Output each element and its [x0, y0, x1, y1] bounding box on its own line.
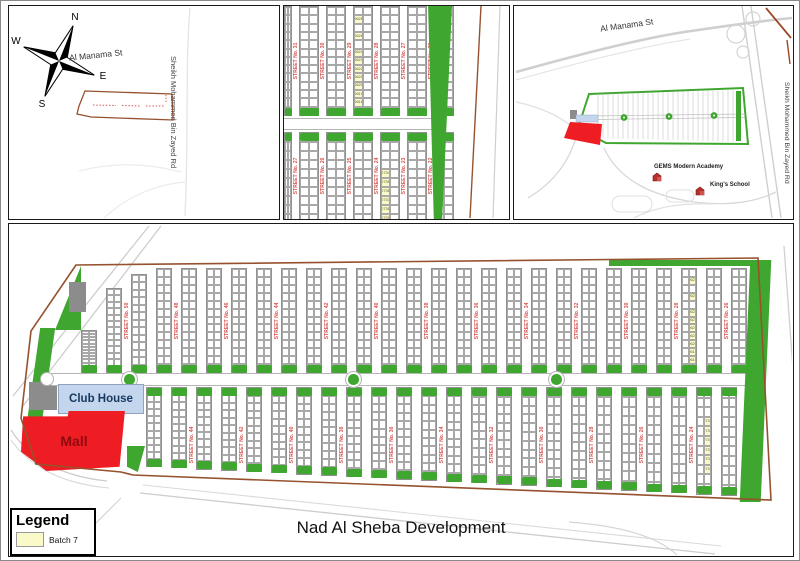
plot: [539, 301, 546, 309]
plot: [457, 285, 464, 293]
plot: [289, 324, 296, 332]
plot: [379, 445, 386, 453]
plot: [397, 446, 404, 454]
plot: [604, 434, 611, 443]
plot: [157, 332, 164, 340]
street: [447, 268, 456, 373]
plot: [407, 324, 414, 332]
plot: [414, 309, 421, 317]
plot: [604, 443, 611, 452]
plot: [639, 277, 646, 285]
plot: [707, 309, 714, 317]
green-verge: [609, 260, 753, 266]
green-strip: [597, 388, 612, 396]
plot-number: 0739: [704, 468, 711, 472]
street: [262, 387, 271, 502]
plot-block: [371, 387, 387, 478]
plot: [322, 451, 329, 459]
plot: [322, 420, 329, 428]
plot: [514, 269, 521, 277]
street-label: STREET No. 50: [124, 302, 129, 339]
plot: [164, 317, 171, 325]
plot: [314, 277, 321, 285]
green-strip: [82, 365, 97, 373]
plot: [407, 309, 414, 317]
plot: [139, 350, 146, 357]
plot: [397, 454, 404, 462]
plot: [597, 406, 604, 415]
plot-number: 0736: [704, 439, 711, 443]
plot: [347, 436, 354, 444]
plot: [632, 332, 639, 340]
street-label: STREET No. 44: [274, 302, 279, 339]
plot: [282, 348, 289, 356]
plot: [504, 414, 511, 423]
plot: [257, 269, 264, 277]
green-strip: [232, 365, 247, 373]
plot: [554, 397, 561, 406]
plot: [164, 285, 171, 293]
plot: [307, 332, 314, 340]
plot: [204, 439, 211, 446]
plot-number: 0734: [704, 420, 711, 424]
plot: [632, 301, 639, 309]
plot: [197, 447, 204, 454]
plot-block: [546, 387, 562, 487]
plot: [507, 285, 514, 293]
plot: [472, 465, 479, 474]
plot: [572, 451, 579, 460]
plot: [489, 285, 496, 293]
plot-zone: STREET No. 44STREET No. 42STREET No. 40S…: [146, 387, 737, 502]
plot: [182, 285, 189, 293]
plot: [307, 348, 314, 356]
plot: [647, 472, 654, 481]
plot: [272, 419, 279, 427]
plot: [532, 317, 539, 325]
plot: [604, 452, 611, 461]
green-strip: [472, 475, 487, 483]
plot: [307, 340, 314, 348]
plot: [489, 277, 496, 285]
plot: [679, 454, 686, 463]
plot: [164, 277, 171, 285]
plot: [672, 416, 679, 425]
plot: [547, 441, 554, 450]
plot: [272, 457, 279, 465]
street-label: STREET No. 34: [524, 302, 529, 339]
plot: [732, 340, 739, 348]
plot: [554, 415, 561, 424]
plot: [664, 317, 671, 325]
plot: [157, 301, 164, 309]
plot: [457, 324, 464, 332]
green-strip: [422, 388, 437, 396]
plot: [454, 464, 461, 472]
plot: [339, 324, 346, 332]
plot-block: [146, 387, 162, 467]
plot-block: [406, 268, 422, 373]
street-label: STREET No. 26: [724, 302, 729, 339]
plot: [232, 356, 239, 364]
street: [197, 268, 206, 373]
plot: [139, 320, 146, 327]
plot: [654, 472, 661, 481]
plot: [447, 422, 454, 430]
plot: [632, 356, 639, 364]
plot: [614, 317, 621, 325]
plot: [372, 445, 379, 453]
plot: [707, 293, 714, 301]
plot-number: 0735: [704, 429, 711, 433]
street: STREET No. 30: [537, 387, 546, 502]
plot: [164, 348, 171, 356]
plot: [164, 324, 171, 332]
plot: [339, 301, 346, 309]
plot: [532, 340, 539, 348]
plot: [457, 356, 464, 364]
plot: [329, 435, 336, 443]
plot: [579, 406, 586, 415]
plot: [464, 356, 471, 364]
plot: [372, 404, 379, 412]
plot: [532, 324, 539, 332]
plot: [589, 332, 596, 340]
plot: [397, 462, 404, 470]
plot: [422, 438, 429, 446]
plot: [282, 356, 289, 364]
street: [412, 387, 421, 502]
plot: [514, 309, 521, 317]
plot: [189, 332, 196, 340]
plot: [429, 438, 436, 446]
plot: [622, 434, 629, 443]
plot: [464, 348, 471, 356]
plot: [604, 425, 611, 434]
green-strip: [282, 365, 297, 373]
plot: [607, 324, 614, 332]
plot: [282, 317, 289, 325]
plot: [382, 277, 389, 285]
plot: [397, 429, 404, 437]
plot: [264, 332, 271, 340]
plot: [564, 332, 571, 340]
plot: [522, 406, 529, 415]
plot: [304, 411, 311, 419]
plot: [389, 332, 396, 340]
green-strip: [697, 486, 712, 494]
plot: [597, 425, 604, 434]
locator-map-graphic: N E S W: [9, 6, 279, 218]
plot-block: [556, 268, 572, 373]
plot: [214, 301, 221, 309]
street: [597, 268, 606, 373]
plot: [539, 269, 546, 277]
plot: [739, 324, 746, 332]
green-strip: [482, 365, 497, 373]
plot-block: [471, 387, 487, 483]
plot: [639, 317, 646, 325]
plot-block: [106, 288, 122, 373]
plot: [464, 269, 471, 277]
plot: [457, 332, 464, 340]
plot: [482, 285, 489, 293]
plot: [414, 324, 421, 332]
plot: [132, 297, 139, 304]
plot: [729, 427, 736, 437]
plot-number: 0618: [689, 358, 696, 362]
plot: [514, 340, 521, 348]
plot: [722, 466, 729, 476]
plot: [464, 277, 471, 285]
plot: [547, 450, 554, 459]
plot: [347, 428, 354, 436]
plot: [622, 471, 629, 480]
plot: [697, 426, 704, 436]
plot-block: [456, 268, 472, 373]
plot: [707, 269, 714, 277]
plot: [432, 324, 439, 332]
plot: [529, 467, 536, 476]
plot: [682, 348, 689, 356]
plot: [729, 398, 736, 408]
plot: [339, 309, 346, 317]
green-strip: [157, 365, 172, 373]
plot: [189, 277, 196, 285]
plot: [382, 340, 389, 348]
green-strip: [707, 365, 722, 373]
plot: [132, 350, 139, 357]
plot: [347, 412, 354, 420]
school-icon: [653, 173, 661, 181]
plot: [482, 317, 489, 325]
plot: [439, 324, 446, 332]
plot: [714, 356, 721, 364]
plot: [189, 301, 196, 309]
plot: [414, 356, 421, 364]
plot: [304, 396, 311, 404]
club-house-label: Club House: [69, 393, 133, 405]
plot: [332, 356, 339, 364]
plot: [354, 436, 361, 444]
plot: [357, 301, 364, 309]
plot: [457, 317, 464, 325]
plot: [732, 269, 739, 277]
plot: [489, 293, 496, 301]
plot: [639, 293, 646, 301]
plot: [657, 348, 664, 356]
plot: [489, 348, 496, 356]
plot: [257, 285, 264, 293]
plot: [207, 301, 214, 309]
plot: [629, 471, 636, 480]
plot: [139, 327, 146, 334]
plot: [589, 293, 596, 301]
plot: [564, 269, 571, 277]
plot: [514, 301, 521, 309]
plot: [657, 293, 664, 301]
plot: [539, 340, 546, 348]
plot: [239, 277, 246, 285]
plot: [729, 446, 736, 456]
plot-number: 0621: [689, 334, 696, 338]
legend-title: Legend: [16, 512, 90, 529]
plot: [332, 269, 339, 277]
plot: [214, 324, 221, 332]
green-strip: [257, 365, 272, 373]
plot: [389, 340, 396, 348]
plot: [339, 269, 346, 277]
plot: [172, 446, 179, 453]
plot: [382, 332, 389, 340]
plot: [564, 277, 571, 285]
plot: [204, 410, 211, 417]
plot: [657, 301, 664, 309]
plot: [322, 459, 329, 467]
plot: [307, 277, 314, 285]
plot: [489, 356, 496, 364]
street: [297, 268, 306, 373]
plot: [182, 340, 189, 348]
plot: [447, 456, 454, 464]
plot: [504, 397, 511, 406]
green-strip: [222, 462, 237, 470]
plot: [279, 411, 286, 419]
plot: [554, 433, 561, 442]
plot: [707, 277, 714, 285]
plot: [354, 404, 361, 412]
plot: [582, 309, 589, 317]
plot: [289, 293, 296, 301]
plot: [229, 433, 236, 440]
plot: [654, 407, 661, 416]
green-strip: [547, 388, 562, 396]
plot: [464, 317, 471, 325]
plot: [639, 340, 646, 348]
street: STREET No. 42: [322, 268, 331, 373]
plot: [732, 293, 739, 301]
plot: [254, 396, 261, 404]
plot: [357, 269, 364, 277]
green-strip: [622, 482, 637, 490]
green-strip: [322, 467, 337, 475]
plot: [189, 324, 196, 332]
plot: [139, 357, 146, 364]
green-strip: [332, 365, 347, 373]
plot: [132, 320, 139, 327]
plot: [314, 332, 321, 340]
street-label: STREET No. 42: [324, 302, 329, 339]
plot: [264, 317, 271, 325]
plot: [547, 468, 554, 477]
plot: [382, 285, 389, 293]
plot: [322, 404, 329, 412]
plot: [132, 290, 139, 297]
plot: [664, 309, 671, 317]
plot: [622, 462, 629, 471]
street: [512, 387, 521, 502]
plot: [364, 348, 371, 356]
plot: [297, 442, 304, 450]
plot: [522, 414, 529, 423]
plot: [314, 348, 321, 356]
plot: [229, 447, 236, 454]
plot: [182, 293, 189, 301]
plot: [314, 285, 321, 293]
plot: [657, 340, 664, 348]
street: [362, 387, 371, 502]
street-label: STREET No. 32: [574, 302, 579, 339]
plot-number: 0626: [689, 295, 696, 299]
plot: [539, 293, 546, 301]
plot: [354, 460, 361, 468]
green-strip: [432, 365, 447, 373]
green-strip: [447, 388, 462, 396]
plot: [714, 277, 721, 285]
plot: [554, 468, 561, 477]
plot-block: [671, 387, 687, 493]
mall: Mall: [21, 411, 127, 471]
plot: [489, 317, 496, 325]
plot: [282, 293, 289, 301]
plot: [532, 277, 539, 285]
plot: [589, 285, 596, 293]
plot-block: [321, 387, 337, 476]
plot: [182, 324, 189, 332]
plot: [147, 438, 154, 445]
mini-mall: [564, 122, 602, 145]
plot: [664, 269, 671, 277]
plot: [357, 285, 364, 293]
plot: [554, 424, 561, 433]
plot: [257, 301, 264, 309]
plot: [579, 469, 586, 478]
plot: [232, 277, 239, 285]
plot: [714, 348, 721, 356]
plot: [482, 293, 489, 301]
plot: [604, 415, 611, 424]
plot: [207, 324, 214, 332]
plot: [164, 301, 171, 309]
plot: [647, 444, 654, 453]
street: STREET No. 28: [587, 387, 596, 502]
green-strip: [507, 365, 522, 373]
plot: [507, 332, 514, 340]
plot-block: [646, 387, 662, 492]
plot: [139, 305, 146, 312]
plot: [564, 317, 571, 325]
plot-block: [181, 268, 197, 373]
plot: [297, 396, 304, 404]
green-strip: [107, 365, 122, 373]
plot: [172, 431, 179, 438]
green-strip: [447, 474, 462, 482]
plot: [422, 430, 429, 438]
plot: [582, 317, 589, 325]
plot: 0739: [704, 465, 711, 475]
plot: [457, 269, 464, 277]
plot: [479, 448, 486, 457]
plot: [164, 309, 171, 317]
plot: 0736: [704, 436, 711, 446]
plot-number: 0624: [689, 311, 696, 315]
plot: [489, 324, 496, 332]
plot: [147, 445, 154, 452]
plot: [264, 293, 271, 301]
plot: [472, 457, 479, 466]
plot-block: 0628062606240623062206210620061906180617: [681, 268, 697, 373]
plot: [289, 309, 296, 317]
